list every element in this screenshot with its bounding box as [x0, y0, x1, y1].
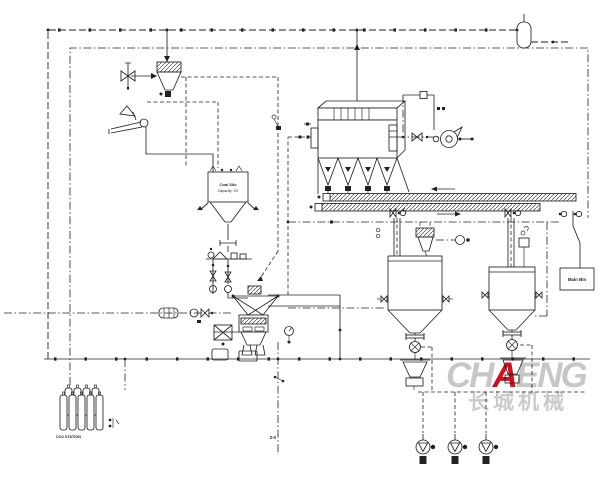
coal-silo: Coal Silo Capacity: XX [197, 166, 259, 240]
pressure-gauge [285, 327, 294, 344]
co2-cylinders [60, 385, 103, 430]
mill-feed-line [4, 308, 233, 323]
system-fan [397, 92, 474, 148]
co2-station-label: CO2 STATION [56, 435, 81, 439]
feed-valve-train [210, 259, 249, 298]
rotary-valve-icon [121, 63, 157, 90]
screw-conveyor-upper [318, 187, 577, 202]
gate-valve [220, 240, 236, 252]
product-bin-1 [376, 208, 470, 392]
recycle-cyclone [157, 30, 181, 97]
vertical-roller-mill [232, 286, 280, 355]
roots-blowers [416, 392, 585, 464]
feed-belt-conveyor [109, 106, 213, 172]
silo-label-line2: Capacity: XX [218, 189, 239, 193]
roots-blower-1 [416, 434, 435, 464]
main-bin: Main Bin [560, 268, 594, 290]
product-bin-2 [482, 208, 542, 392]
silo-label-line1: Coal Silo [219, 182, 237, 187]
main-bin-branch [559, 211, 582, 268]
bag-filter [311, 29, 409, 195]
roots-blower-3 [479, 434, 498, 464]
main-bin-label: Main Bin [568, 277, 587, 282]
process-flow-diagram: Coal Silo Capacity: XX [0, 0, 600, 478]
co2-station: CO2 STATION [56, 359, 125, 439]
chimney [517, 14, 531, 48]
drain-label: Z-0 [270, 435, 277, 440]
belt-weighfeeder [206, 248, 252, 259]
roots-blower-2 [448, 434, 467, 464]
